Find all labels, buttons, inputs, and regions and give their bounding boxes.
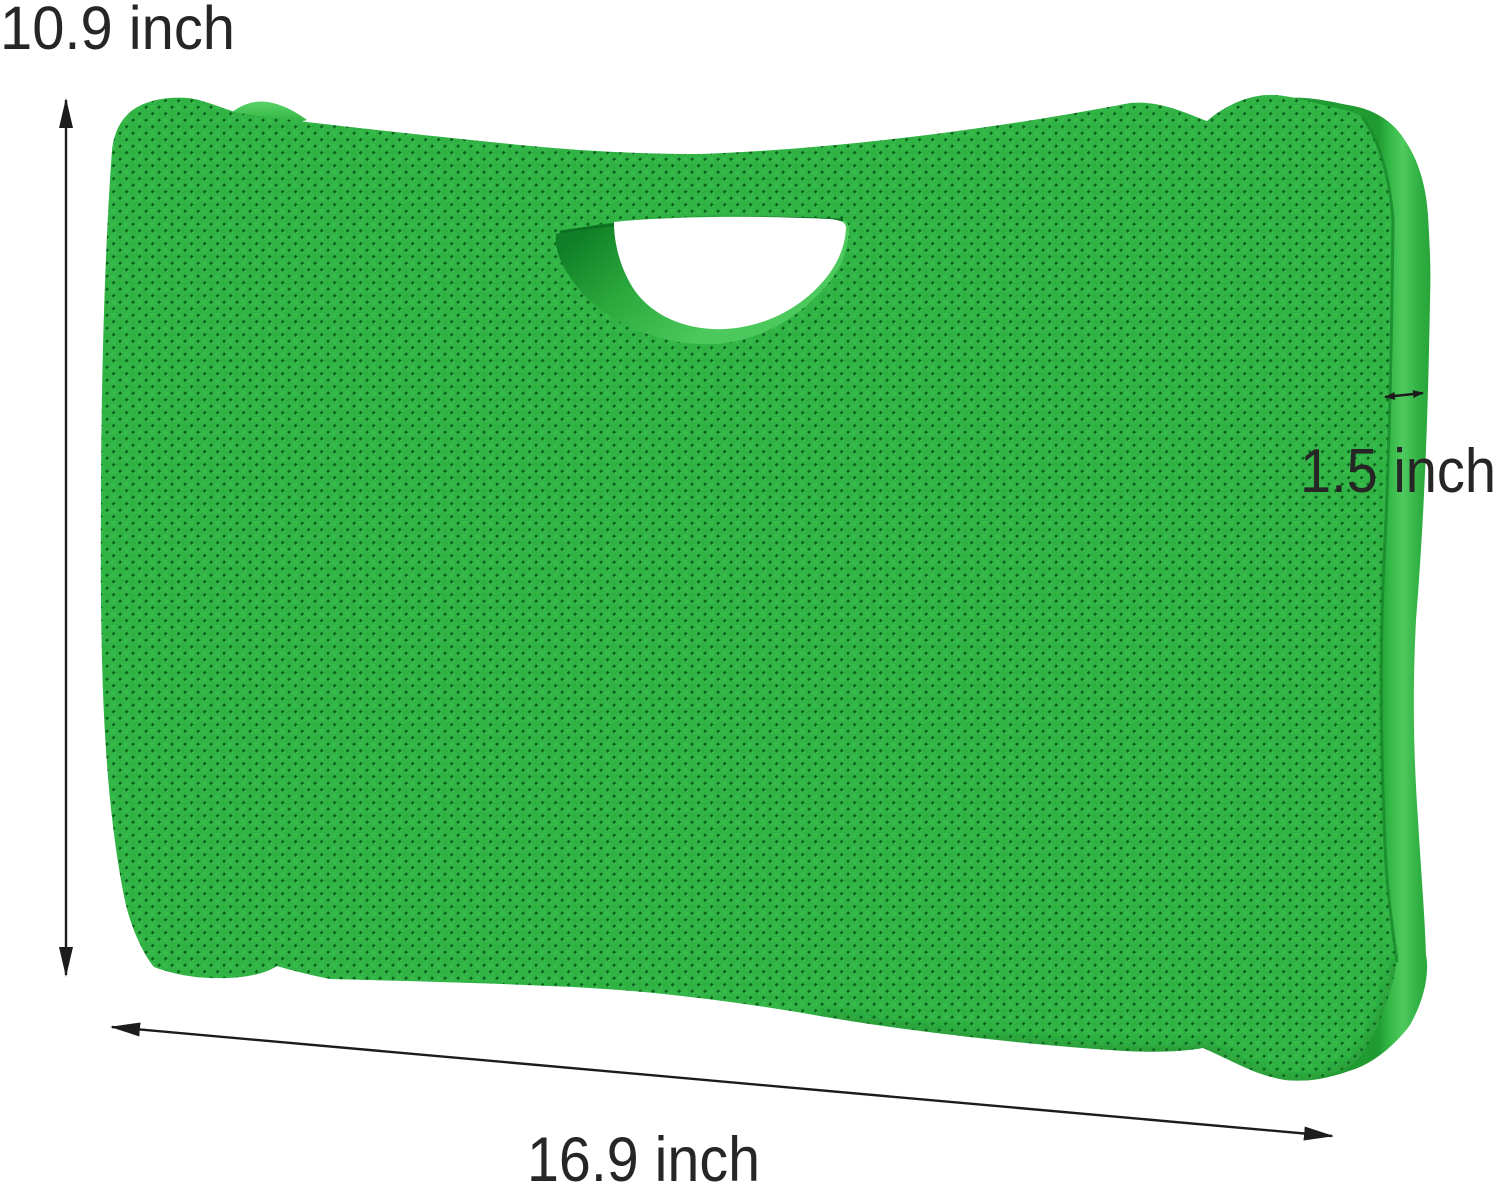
svg-text:10.9 inch: 10.9 inch — [0, 0, 235, 62]
svg-text:16.9 inch: 16.9 inch — [527, 1125, 760, 1184]
svg-text:1.5 inch: 1.5 inch — [1300, 437, 1496, 506]
